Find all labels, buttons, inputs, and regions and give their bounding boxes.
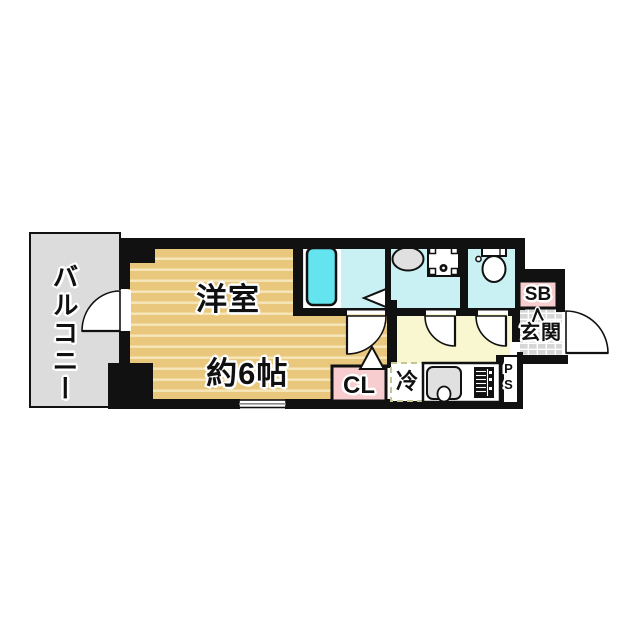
pipe-space-label: PS — [502, 361, 515, 401]
closet-label: CL — [332, 374, 386, 398]
washing-machine-icon — [428, 246, 459, 276]
kitchen-sink-icon — [427, 367, 461, 402]
window-main-room — [239, 400, 286, 408]
main-room-label: 洋室 約6帖 — [120, 281, 336, 392]
main-room-size: 約6帖 — [206, 356, 288, 391]
main-room-name: 洋室 — [196, 282, 260, 317]
stove-icon — [474, 367, 494, 398]
balcony-label: バルコニー — [51, 263, 77, 408]
washbasin-icon — [393, 248, 424, 271]
floor-plan-canvas: 洋室 約6帖 バルコニー CL 冷 PS SB 玄関 — [0, 0, 640, 640]
shoe-box-label: SB — [519, 285, 557, 304]
refrigerator-label: 冷 — [391, 371, 423, 393]
entrance-label: 玄関 — [516, 323, 566, 343]
entrance-door — [566, 311, 608, 353]
